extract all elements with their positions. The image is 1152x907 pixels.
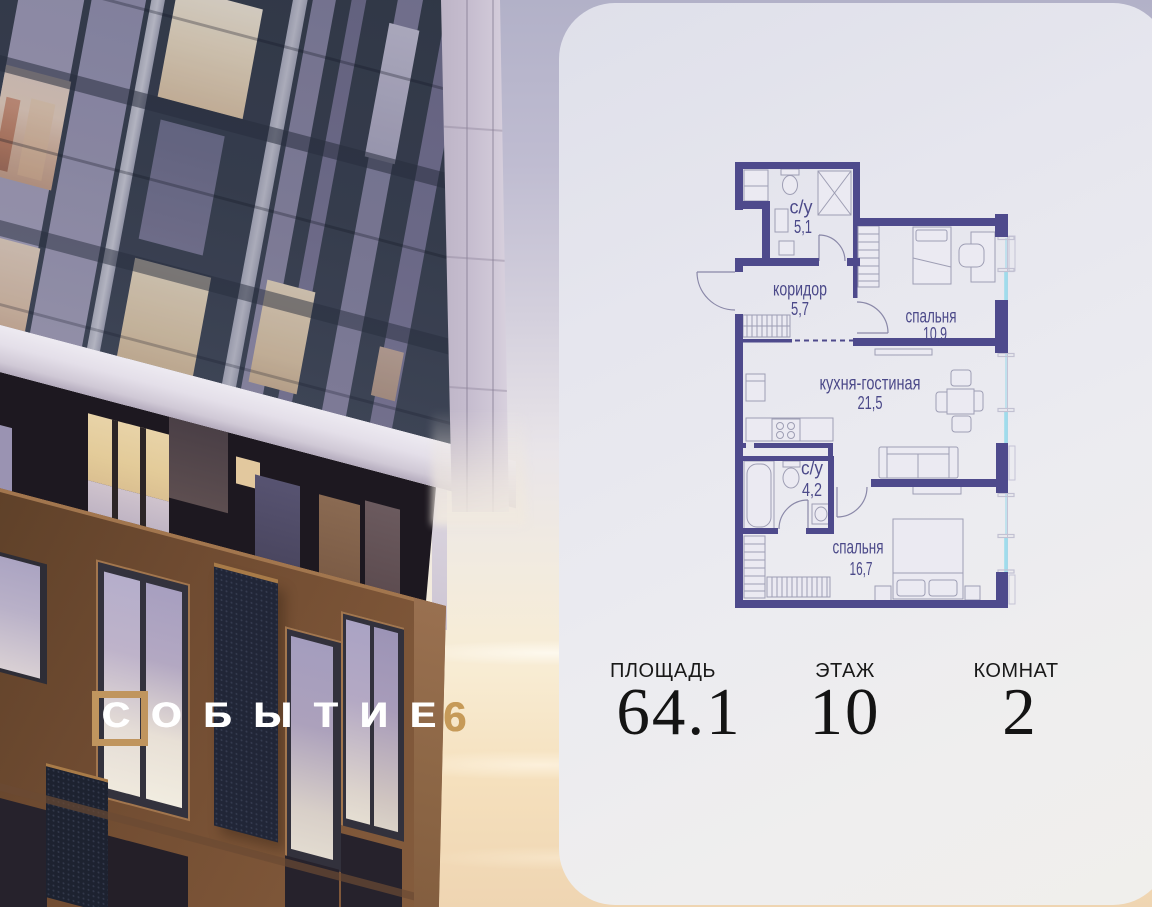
svg-text:4,2: 4,2 — [802, 480, 822, 500]
svg-text:21,5: 21,5 — [858, 393, 883, 413]
svg-text:с/у: с/у — [790, 198, 813, 219]
svg-text:10,9: 10,9 — [923, 324, 947, 344]
svg-text:с/у: с/у — [801, 459, 823, 480]
svg-text:спальня: спальня — [833, 538, 884, 559]
svg-text:16,7: 16,7 — [850, 559, 873, 579]
svg-text:коридор: коридор — [773, 280, 827, 301]
svg-text:кухня-гостиная: кухня-гостиная — [820, 374, 921, 395]
svg-text:5,7: 5,7 — [791, 299, 809, 319]
svg-text:5,1: 5,1 — [794, 217, 812, 237]
